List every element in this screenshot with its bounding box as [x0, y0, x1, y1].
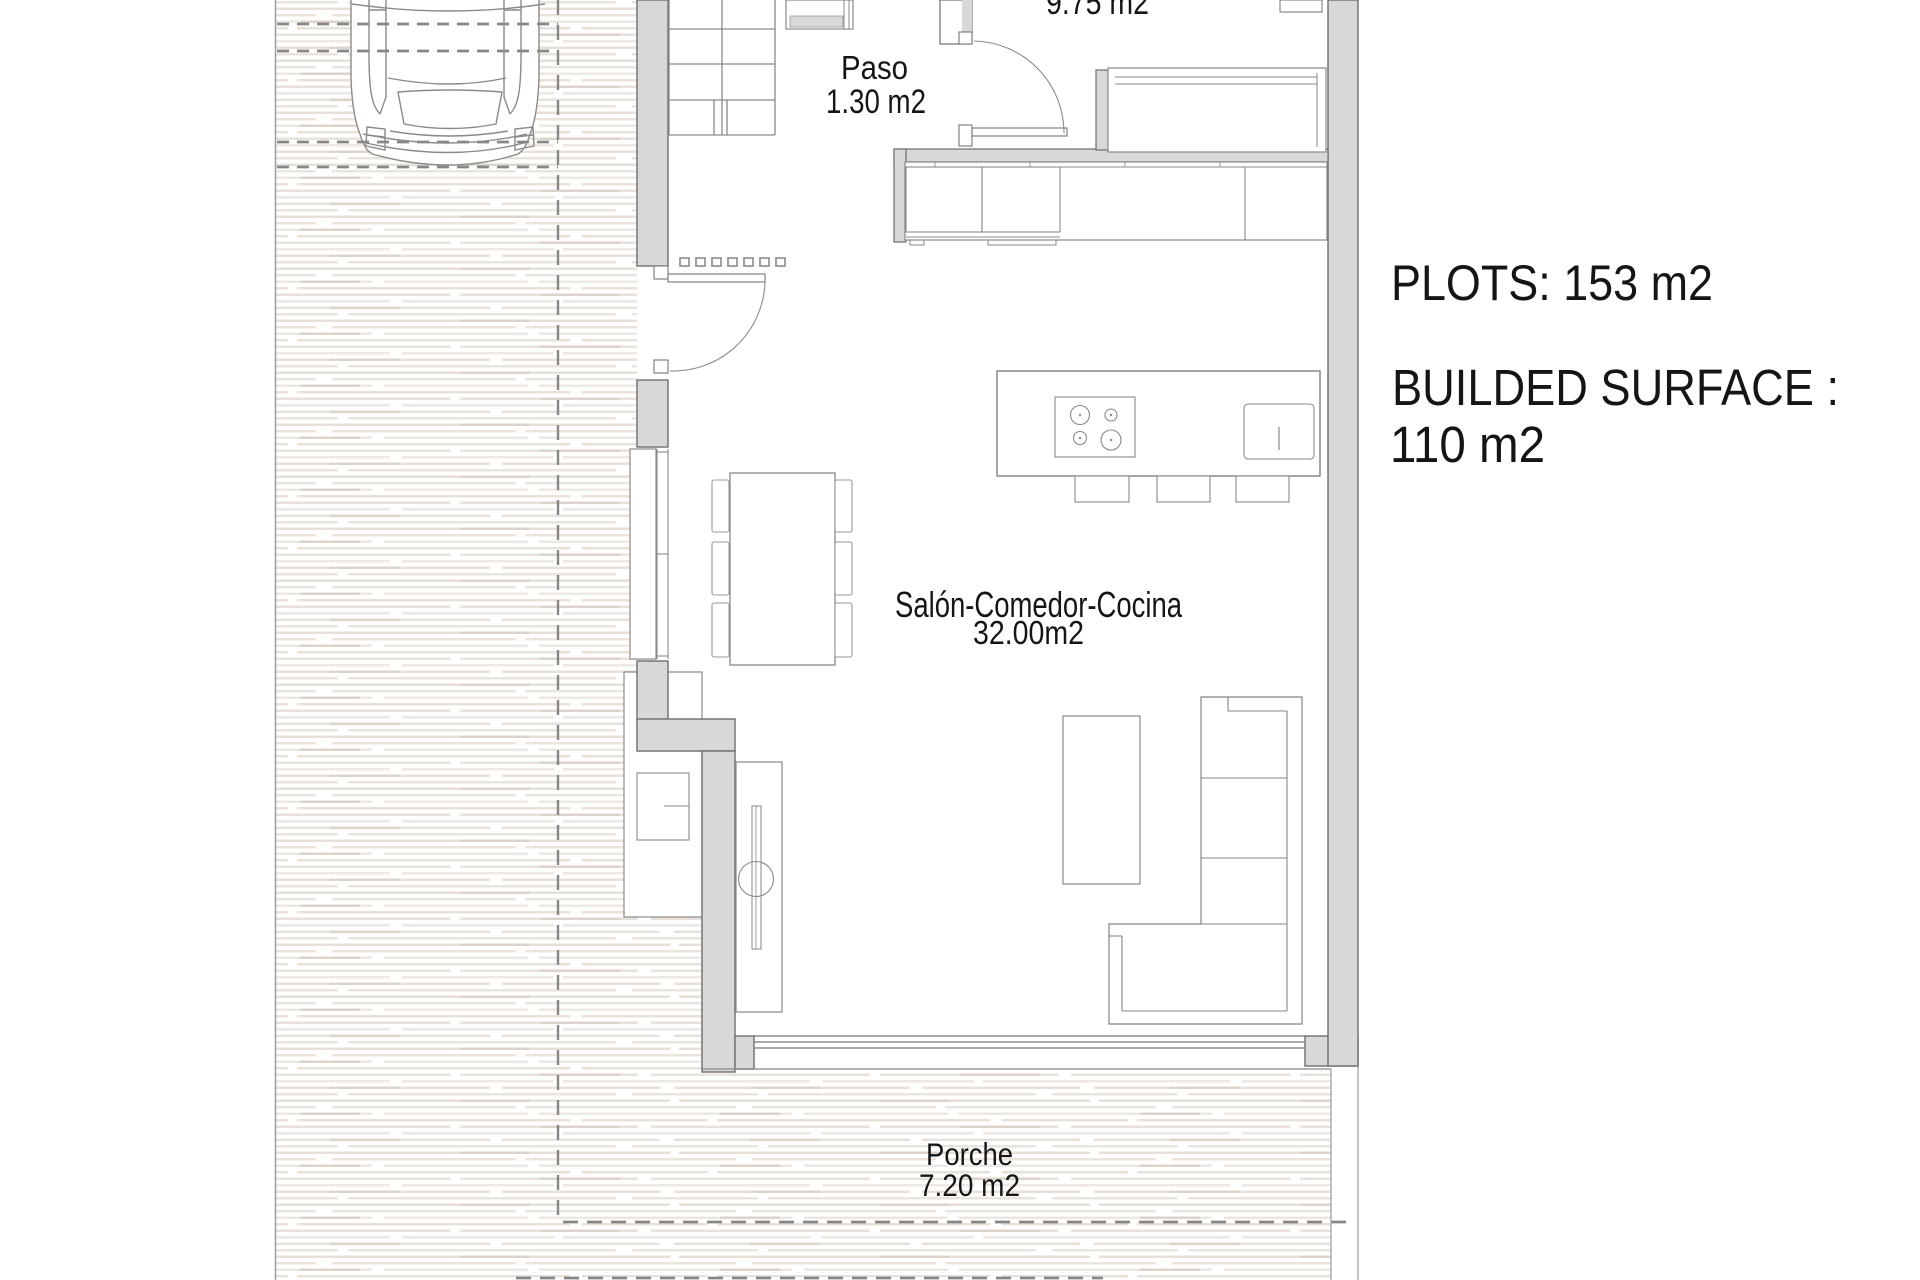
- svg-text:1.30 m2: 1.30 m2: [826, 83, 926, 121]
- svg-text:9.75 m2: 9.75 m2: [1046, 0, 1149, 22]
- svg-text:110 m2: 110 m2: [1390, 416, 1545, 473]
- svg-text:32.00m2: 32.00m2: [973, 614, 1084, 651]
- svg-text:PLOTS: 153 m2: PLOTS: 153 m2: [1391, 255, 1713, 311]
- svg-text:Paso: Paso: [841, 50, 908, 87]
- svg-text:7.20 m2: 7.20 m2: [919, 1167, 1020, 1203]
- svg-text:BUILDED SURFACE :: BUILDED SURFACE :: [1392, 359, 1839, 416]
